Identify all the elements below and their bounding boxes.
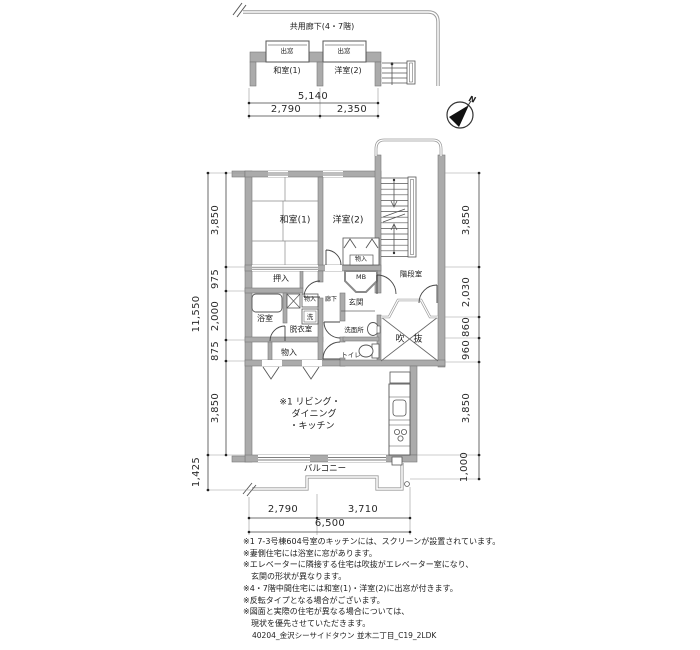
detail-dim-total: 5,140	[298, 92, 328, 102]
note-line: ※妻側住宅には浴室に窓があります。	[243, 548, 543, 560]
room-label-oshiire: 押入	[273, 275, 289, 283]
bay-window-left-label: 出窓	[281, 48, 294, 55]
top-detail-stairs	[382, 61, 415, 85]
room-label-toilet: トイレ	[341, 352, 361, 359]
dim-bottom-left: 2,790	[268, 505, 298, 515]
room-label-dressing: 脱衣室	[290, 325, 313, 333]
dim-left-seg-5: 3,850	[211, 393, 221, 423]
dim-left-seg-3: 2,000	[211, 301, 221, 331]
dim-right-seg-3: 860	[462, 317, 472, 337]
dim-right-seg-2: 2,030	[462, 277, 472, 307]
kitchen-sink	[393, 400, 406, 416]
bay-window-right-label: 出窓	[338, 48, 351, 55]
label-bedroom2-closet: 物入	[355, 257, 367, 263]
detail-room-left-label: 和室(1)	[273, 67, 300, 75]
label-meter-box: MB	[356, 274, 366, 281]
note-line: ※図面と実際の住宅が異なる場合については、	[243, 606, 543, 618]
room-label-ldk-1: ※1 リビング・	[279, 399, 340, 408]
kitchen-counter	[389, 372, 410, 455]
dim-right-seg-4: 960	[462, 340, 472, 360]
room-label-balcony: バルコニー	[304, 465, 346, 474]
detail-room-right-label: 洋室(2)	[334, 67, 361, 75]
note-line: ※4・7階中間住宅には和室(1)・洋室(2)に出窓が付きます。	[243, 583, 543, 595]
note-line: ※反転タイプとなる場合がございます。	[243, 595, 543, 607]
top-detail-plan	[250, 41, 415, 86]
room-label-washroom: 洗面所	[344, 327, 364, 334]
dim-left-seg-4: 875	[211, 341, 221, 361]
room-label-ldk-2: ダイニング	[291, 411, 336, 420]
floorplan-sheet: 共用廊下(4・7階) 出窓 出窓 和室(1) 洋室(2) 5,140 2,790…	[0, 0, 700, 650]
refrigerator-space	[390, 372, 410, 383]
dim-right-seg-1: 3,850	[462, 205, 472, 235]
balcony-vent	[392, 457, 402, 465]
bathtub	[252, 294, 282, 312]
compass-icon	[447, 101, 473, 128]
corridor-label: 共用廊下(4・7階)	[290, 23, 354, 31]
void-area	[381, 300, 438, 361]
room-label-genkan: 玄関	[349, 298, 364, 306]
room-label-yoshitsu2: 洋室(2)	[333, 217, 364, 226]
note-line: ※1 7-3号棟604号室のキッチンには、スクリーンが設置されています。	[243, 536, 543, 548]
room-label-stairwell: 階段室	[400, 270, 423, 278]
room-label-bathroom: 浴室	[257, 315, 273, 323]
note-line: 玄関の形状が異なります。	[243, 571, 543, 583]
room-label-washitsu1: 和室(1)	[280, 217, 311, 226]
detail-dim-left: 2,790	[271, 105, 301, 115]
dim-left-seg-2: 975	[211, 269, 221, 289]
room-label-storage-lower: 物入	[281, 349, 297, 357]
label-washer: 洗	[307, 314, 314, 321]
dim-bottom-total: 6,500	[315, 519, 345, 529]
room-label-void: 吹 抜	[395, 336, 422, 345]
bifold-door-marks	[263, 367, 319, 379]
balcony-drain	[405, 482, 410, 487]
stairwell-canopy	[376, 140, 441, 156]
note-line: ※エレベーターに隣接する住宅は吹抜がエレベーター室になり、	[243, 559, 543, 571]
dim-left-total: 11,550	[192, 296, 202, 333]
drawing-title: 40204_金沢シーサイドタウン 並木二丁目_C19_2LDK	[252, 630, 436, 641]
notes-block: ※1 7-3号棟604号室のキッチンには、スクリーンが設置されています。 ※妻側…	[243, 536, 543, 630]
toilet-bowl	[359, 345, 373, 357]
dim-bottom-right: 3,710	[348, 505, 378, 515]
stairs	[381, 177, 416, 257]
dim-right-seg-5: 3,850	[462, 393, 472, 423]
room-label-rouka: 廊下	[325, 297, 337, 303]
dim-left-seg-1: 3,850	[211, 205, 221, 235]
room-label-ldk-3: ・キッチン	[289, 423, 334, 432]
dim-right-balcony: 1,000	[460, 452, 470, 482]
note-line: 現状を優先させていただきます。	[243, 618, 543, 630]
dim-left-balcony: 1,425	[192, 457, 202, 487]
label-hall-storage: 物入	[304, 297, 316, 303]
detail-dim-right: 2,350	[337, 105, 367, 115]
